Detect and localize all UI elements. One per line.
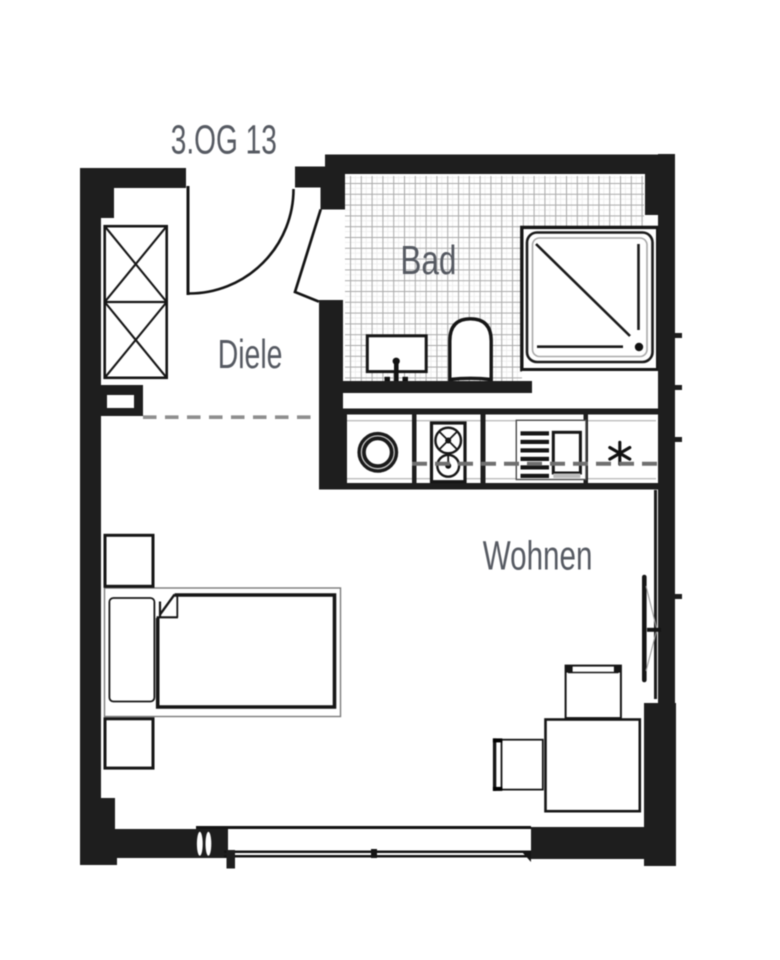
svg-text:3.OG 13: 3.OG 13: [171, 117, 277, 163]
svg-text:Diele: Diele: [218, 331, 283, 377]
svg-text:Wohnen: Wohnen: [483, 532, 593, 578]
svg-text:Bad: Bad: [400, 237, 456, 283]
